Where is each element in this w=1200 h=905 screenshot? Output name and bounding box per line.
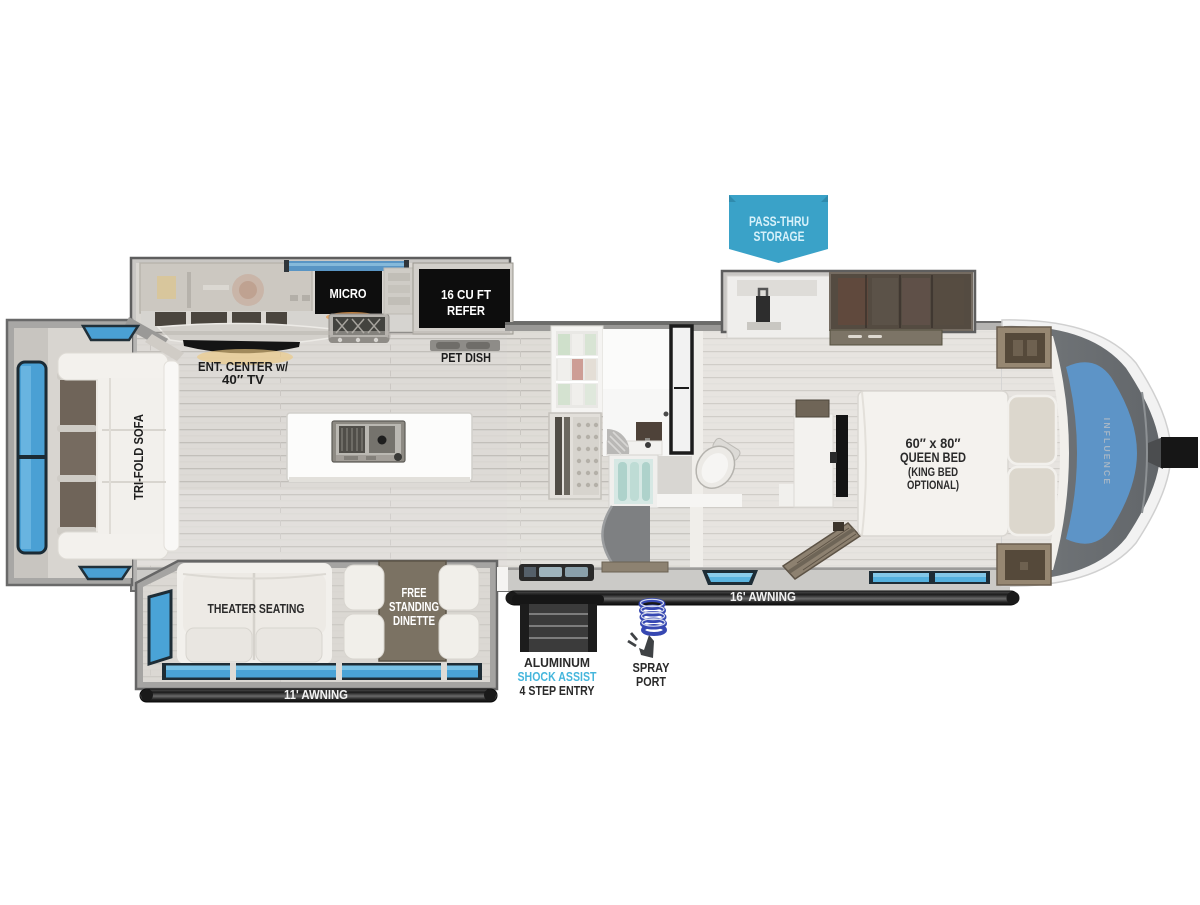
svg-text:16 CU FT: 16 CU FT (441, 287, 491, 302)
svg-text:FREE: FREE (402, 586, 427, 600)
svg-text:SPRAY: SPRAY (633, 660, 670, 675)
svg-text:REFER: REFER (447, 303, 486, 318)
svg-text:OPTIONAL): OPTIONAL) (907, 478, 959, 492)
svg-text:STORAGE: STORAGE (754, 229, 805, 244)
svg-text:SHOCK ASSIST: SHOCK ASSIST (518, 669, 597, 684)
svg-text:MICRO: MICRO (330, 286, 367, 301)
svg-text:STANDING: STANDING (389, 600, 439, 614)
svg-text:PASS-THRU: PASS-THRU (749, 214, 809, 229)
svg-text:40″ TV: 40″ TV (222, 372, 264, 387)
svg-text:11' AWNING: 11' AWNING (284, 688, 348, 702)
svg-text:16' AWNING: 16' AWNING (730, 590, 796, 604)
svg-text:INFLUENCE: INFLUENCE (1102, 418, 1112, 486)
svg-text:4 STEP ENTRY: 4 STEP ENTRY (520, 683, 595, 698)
svg-text:PORT: PORT (636, 674, 666, 689)
svg-text:TRI-FOLD SOFA: TRI-FOLD SOFA (131, 413, 146, 500)
svg-text:ALUMINUM: ALUMINUM (524, 655, 590, 670)
svg-text:PET DISH: PET DISH (441, 350, 491, 365)
svg-text:THEATER SEATING: THEATER SEATING (208, 601, 305, 616)
svg-text:QUEEN BED: QUEEN BED (900, 449, 966, 465)
svg-text:(KING BED: (KING BED (908, 465, 958, 479)
svg-text:DINETTE: DINETTE (393, 614, 435, 628)
